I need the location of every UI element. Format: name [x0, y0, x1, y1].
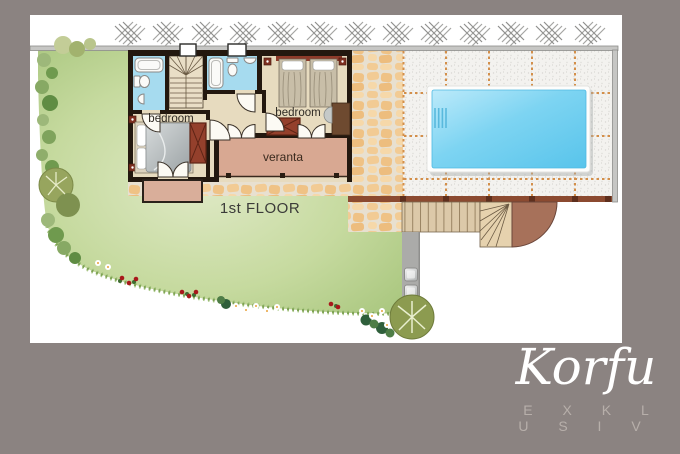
window-1	[180, 44, 196, 56]
bedroom-left-label: bedroom	[148, 113, 193, 125]
veranda-label: veranta	[263, 150, 303, 164]
brand-block: Korfu E X K L U S I V	[492, 336, 680, 434]
wood-steps	[402, 202, 480, 232]
porch	[143, 180, 202, 202]
plan-canvas: bedroom bedroom veranta 1st FLOOR	[30, 15, 622, 343]
floor-label: 1st FLOOR	[220, 200, 300, 217]
boundary-wall-right	[613, 50, 618, 202]
deck-quarter-circle	[512, 202, 557, 247]
window-2	[228, 44, 246, 56]
brand-tagline: E X K L U S I V	[492, 402, 680, 434]
single-bed-1	[279, 59, 306, 107]
bedroom-right-label: bedroom	[275, 107, 320, 119]
wall-unit	[332, 103, 350, 135]
toilet-tank	[227, 58, 238, 63]
wardrobe	[190, 123, 206, 163]
page-background: bedroom bedroom veranta 1st FLOOR Korfu …	[0, 0, 680, 454]
skylight-1	[405, 268, 418, 281]
tree-bottom-right	[390, 295, 434, 339]
brand-name: Korfu	[492, 336, 680, 398]
pergola-hatch-row	[115, 22, 605, 46]
boundary-wall-top	[30, 46, 618, 51]
house: bedroom bedroom veranta	[128, 44, 352, 202]
pool	[427, 86, 593, 176]
toilet	[228, 64, 237, 76]
terrace-edge	[348, 196, 612, 202]
staircase	[169, 56, 203, 108]
winder-steps	[480, 202, 512, 247]
single-bed-2	[310, 59, 337, 107]
